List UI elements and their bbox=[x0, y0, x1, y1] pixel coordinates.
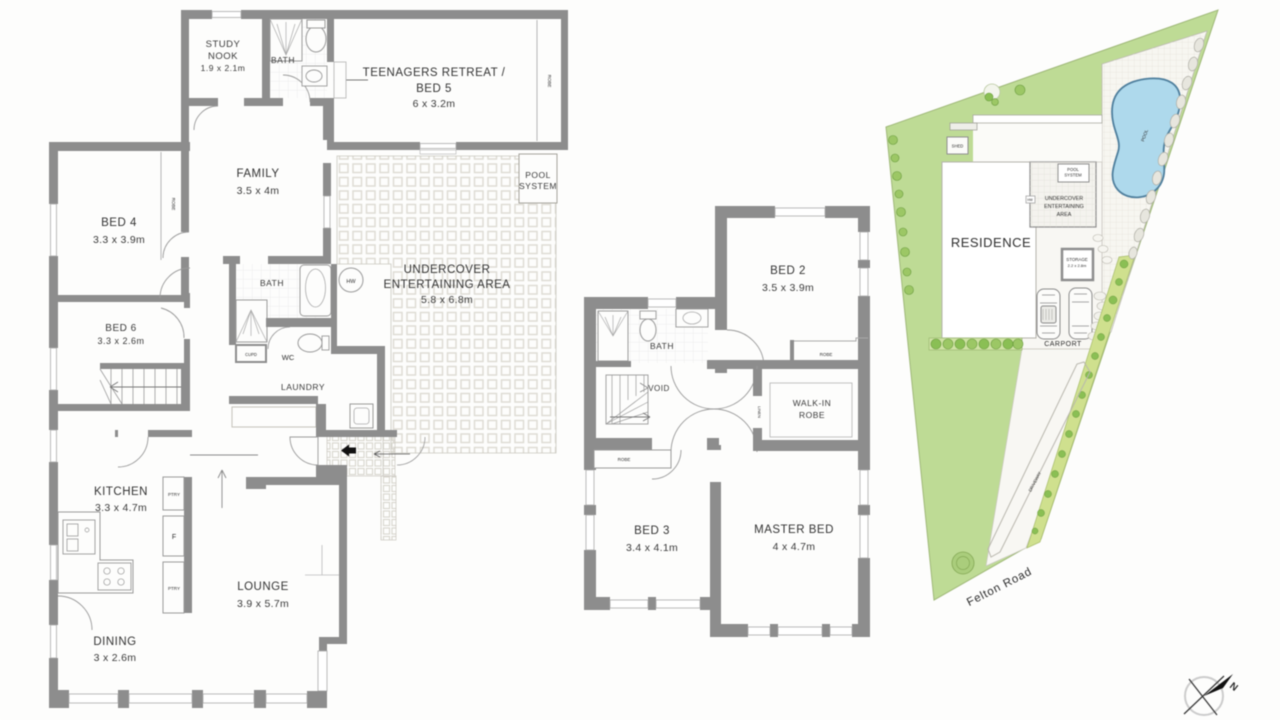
svg-text:PTRY: PTRY bbox=[168, 492, 180, 497]
svg-text:POOL: POOL bbox=[1067, 167, 1079, 172]
svg-text:ROBE: ROBE bbox=[820, 352, 833, 357]
svg-text:SYSTEM: SYSTEM bbox=[519, 181, 557, 191]
svg-text:BATH: BATH bbox=[271, 55, 295, 65]
svg-text:WALK-IN: WALK-IN bbox=[793, 398, 832, 408]
svg-text:BED 3: BED 3 bbox=[634, 525, 670, 537]
svg-text:FAMILY: FAMILY bbox=[236, 168, 279, 180]
svg-text:ROBE: ROBE bbox=[618, 457, 631, 462]
svg-text:ROBE: ROBE bbox=[171, 198, 176, 211]
svg-text:NOOK: NOOK bbox=[208, 51, 238, 62]
svg-text:LAUNDRY: LAUNDRY bbox=[281, 382, 325, 392]
svg-text:6 x 3.2m: 6 x 3.2m bbox=[413, 98, 456, 110]
svg-text:BED 6: BED 6 bbox=[105, 323, 136, 334]
svg-text:F: F bbox=[172, 534, 176, 541]
svg-text:3.3 x 2.6m: 3.3 x 2.6m bbox=[97, 336, 144, 346]
svg-text:3 x 2.6m: 3 x 2.6m bbox=[94, 652, 137, 664]
svg-text:POOL: POOL bbox=[525, 170, 551, 180]
svg-text:PTRY: PTRY bbox=[168, 586, 180, 591]
svg-text:1.9 x 2.1m: 1.9 x 2.1m bbox=[201, 63, 246, 73]
svg-text:BATH: BATH bbox=[260, 278, 284, 288]
svg-text:ROBE: ROBE bbox=[547, 75, 552, 88]
svg-text:BED 2: BED 2 bbox=[770, 265, 806, 277]
svg-text:2.2 x 2.8m: 2.2 x 2.8m bbox=[1068, 263, 1087, 268]
svg-text:HW: HW bbox=[1027, 198, 1032, 202]
svg-text:3.3 x 4.7m: 3.3 x 4.7m bbox=[95, 502, 147, 514]
svg-text:DINING: DINING bbox=[93, 636, 136, 648]
svg-text:RESIDENCE: RESIDENCE bbox=[951, 235, 1031, 250]
svg-text:ROBE: ROBE bbox=[799, 410, 825, 420]
svg-text:3.3 x 3.9m: 3.3 x 3.9m bbox=[93, 234, 145, 246]
svg-text:SHED: SHED bbox=[952, 144, 964, 149]
svg-text:MASTER BED: MASTER BED bbox=[754, 524, 834, 536]
svg-text:UNDERCOVER: UNDERCOVER bbox=[1045, 196, 1083, 202]
svg-text:UNDERCOVER: UNDERCOVER bbox=[404, 264, 491, 276]
svg-text:3.4 x 4.1m: 3.4 x 4.1m bbox=[626, 542, 678, 554]
svg-text:TEENAGERS RETREAT /: TEENAGERS RETREAT / bbox=[363, 67, 506, 79]
svg-text:AREA: AREA bbox=[1057, 212, 1072, 218]
svg-text:BED 4: BED 4 bbox=[101, 217, 137, 229]
svg-text:CARPORT: CARPORT bbox=[1044, 341, 1082, 348]
svg-text:3.5 x 3.9m: 3.5 x 3.9m bbox=[762, 282, 814, 294]
svg-text:ENTERTAINING: ENTERTAINING bbox=[1044, 204, 1084, 210]
svg-text:STUDY: STUDY bbox=[206, 39, 241, 50]
svg-text:3.5 x 4m: 3.5 x 4m bbox=[237, 185, 280, 197]
svg-text:HW: HW bbox=[346, 279, 356, 285]
svg-text:KITCHEN: KITCHEN bbox=[94, 486, 148, 498]
svg-text:BATH: BATH bbox=[650, 341, 674, 351]
svg-text:STORAGE: STORAGE bbox=[1066, 257, 1087, 262]
svg-text:5.8 x 6.8m: 5.8 x 6.8m bbox=[421, 294, 473, 306]
svg-text:LOUNGE: LOUNGE bbox=[237, 581, 289, 593]
svg-text:CUPD: CUPD bbox=[245, 352, 257, 357]
svg-text:WC: WC bbox=[282, 353, 295, 362]
svg-text:LINEN: LINEN bbox=[757, 406, 762, 418]
svg-text:VOID: VOID bbox=[648, 384, 670, 393]
svg-text:BED 5: BED 5 bbox=[416, 83, 452, 95]
svg-text:4 x 4.7m: 4 x 4.7m bbox=[773, 541, 816, 553]
svg-text:ENTERTAINING AREA: ENTERTAINING AREA bbox=[384, 279, 511, 291]
svg-text:3.9 x 5.7m: 3.9 x 5.7m bbox=[237, 598, 289, 610]
svg-text:SYSTEM: SYSTEM bbox=[1064, 173, 1082, 178]
